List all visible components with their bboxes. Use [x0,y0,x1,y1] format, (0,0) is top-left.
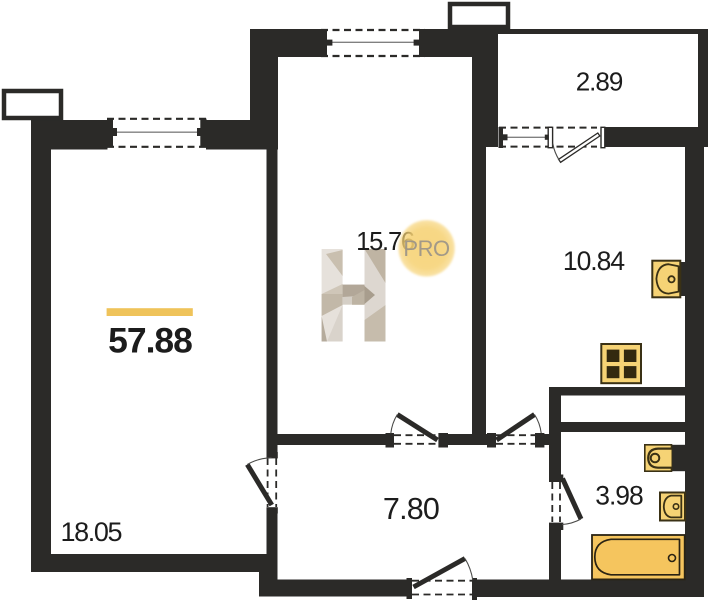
svg-text:2.89: 2.89 [576,67,623,97]
svg-text:3.98: 3.98 [595,481,643,511]
svg-text:PRO: PRO [403,236,450,261]
svg-text:10.84: 10.84 [563,246,625,276]
svg-text:57.88: 57.88 [108,321,192,361]
svg-text:18.05: 18.05 [61,517,122,547]
svg-text:7.80: 7.80 [383,492,439,526]
